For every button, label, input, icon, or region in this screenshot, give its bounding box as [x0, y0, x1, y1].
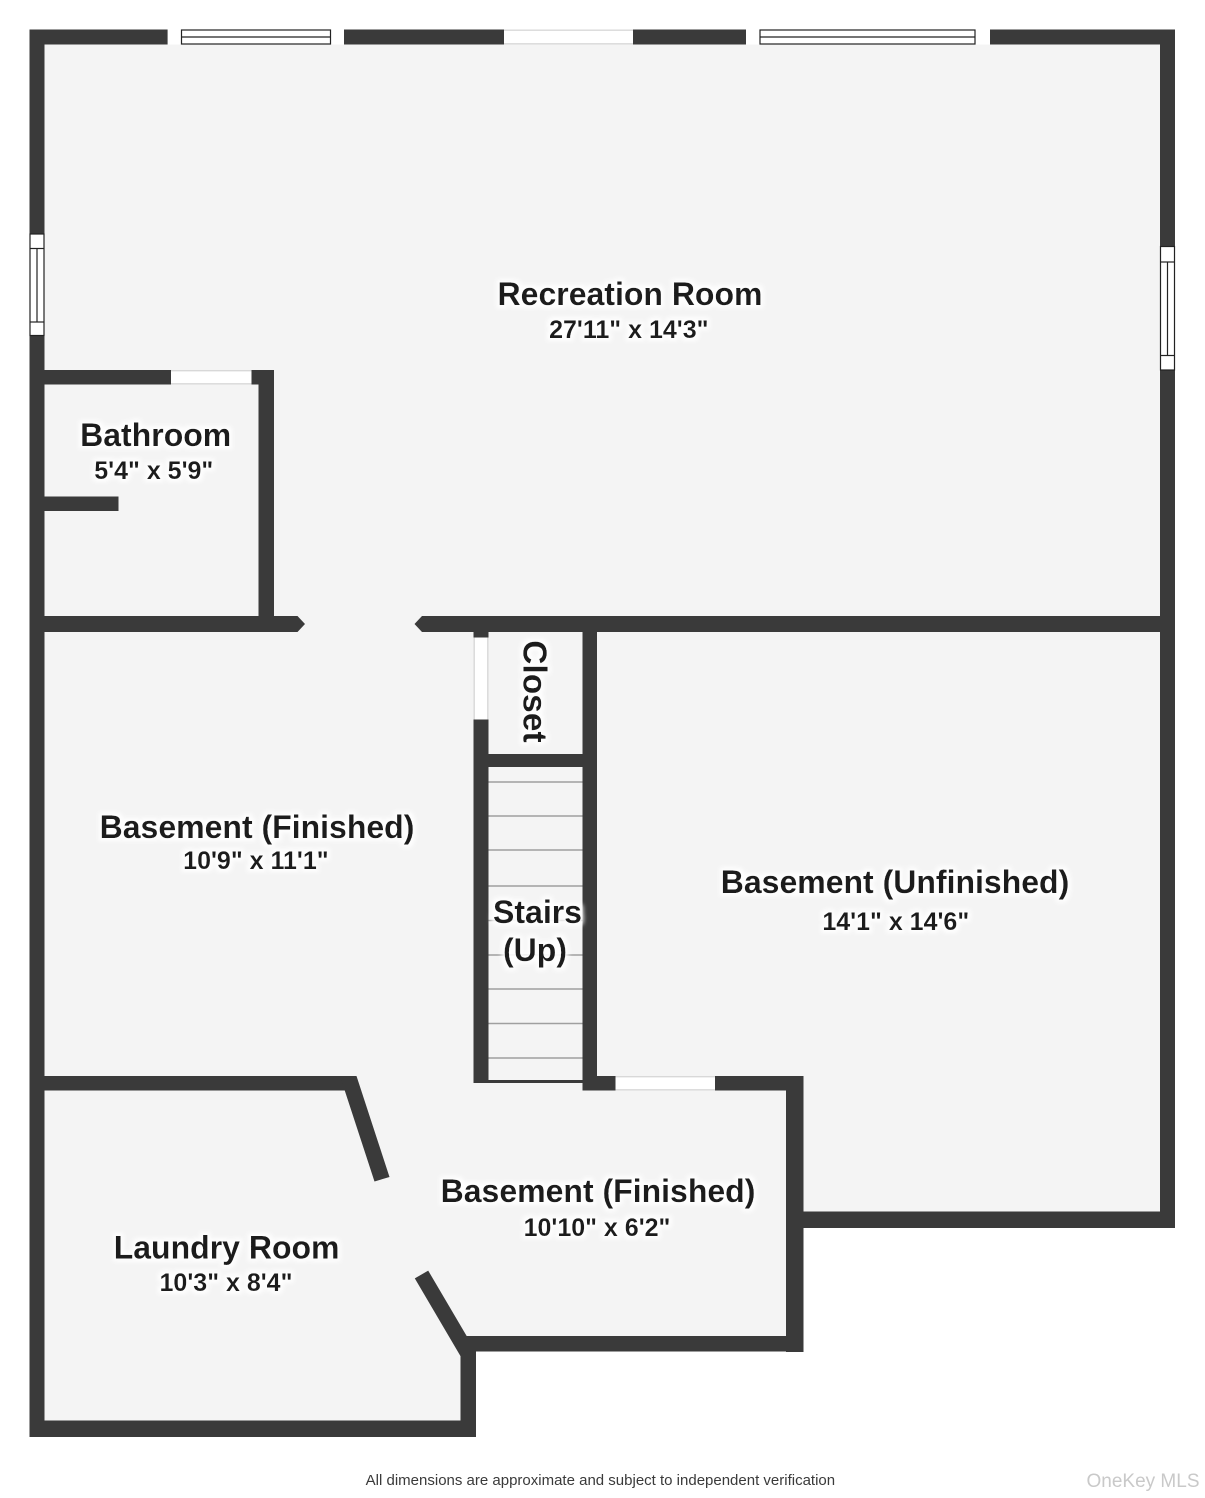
svg-text:10'3" x 8'4": 10'3" x 8'4" [160, 1269, 293, 1297]
svg-text:10'10" x 6'2": 10'10" x 6'2" [524, 1214, 671, 1242]
svg-text:(Up): (Up) [503, 932, 567, 968]
svg-text:OneKey MLS: OneKey MLS [1087, 1471, 1200, 1492]
svg-text:Laundry Room: Laundry Room [114, 1230, 340, 1266]
svg-text:All dimensions are approximate: All dimensions are approximate and subje… [366, 1472, 835, 1489]
svg-text:Recreation Room: Recreation Room [498, 276, 763, 312]
svg-text:Basement (Finished): Basement (Finished) [100, 809, 415, 845]
svg-text:Basement (Unfinished): Basement (Unfinished) [721, 864, 1069, 900]
svg-text:Closet: Closet [516, 640, 553, 742]
svg-text:5'4" x 5'9": 5'4" x 5'9" [94, 457, 213, 485]
svg-text:Stairs: Stairs [493, 894, 582, 930]
svg-text:Bathroom: Bathroom [80, 417, 231, 453]
svg-text:10'9" x 11'1": 10'9" x 11'1" [183, 847, 328, 875]
svg-text:27'11" x 14'3": 27'11" x 14'3" [549, 316, 708, 344]
svg-text:Basement (Finished): Basement (Finished) [441, 1173, 756, 1209]
svg-text:14'1" x 14'6": 14'1" x 14'6" [822, 908, 969, 936]
